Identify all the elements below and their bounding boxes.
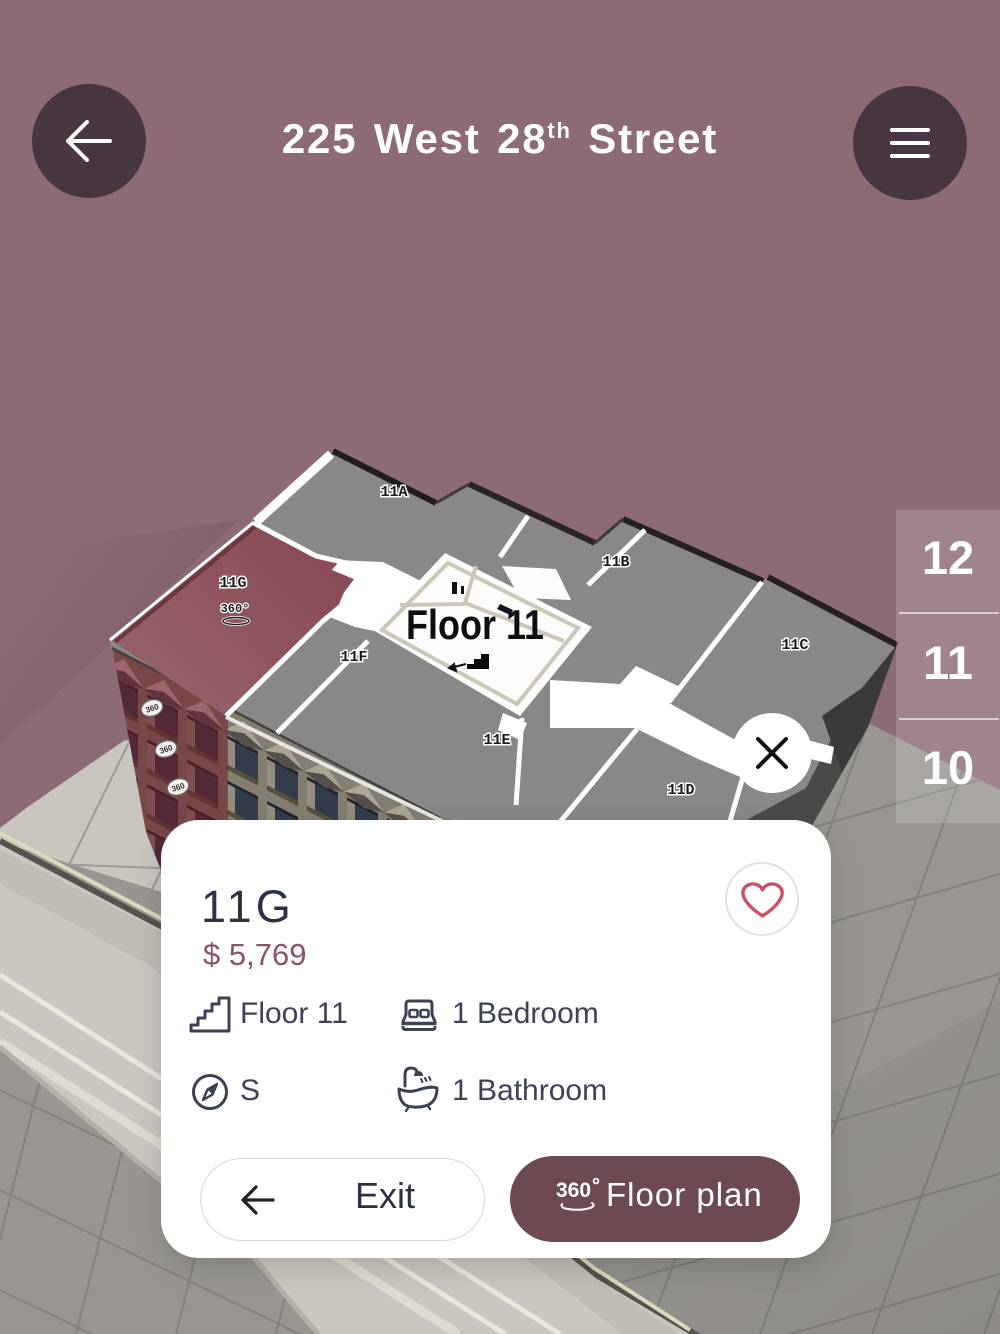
svg-text:11E: 11E <box>483 732 510 749</box>
svg-text:360: 360 <box>556 1179 591 1202</box>
svg-text:11F: 11F <box>340 649 367 666</box>
svg-text:Floor 11: Floor 11 <box>406 601 544 648</box>
svg-text:11A: 11A <box>380 484 407 501</box>
svg-text:360°: 360° <box>221 602 250 616</box>
svg-text:11C: 11C <box>781 637 808 654</box>
svg-text:11B: 11B <box>602 554 629 571</box>
svg-text:11D: 11D <box>667 782 694 799</box>
svg-text:11G: 11G <box>219 575 246 592</box>
